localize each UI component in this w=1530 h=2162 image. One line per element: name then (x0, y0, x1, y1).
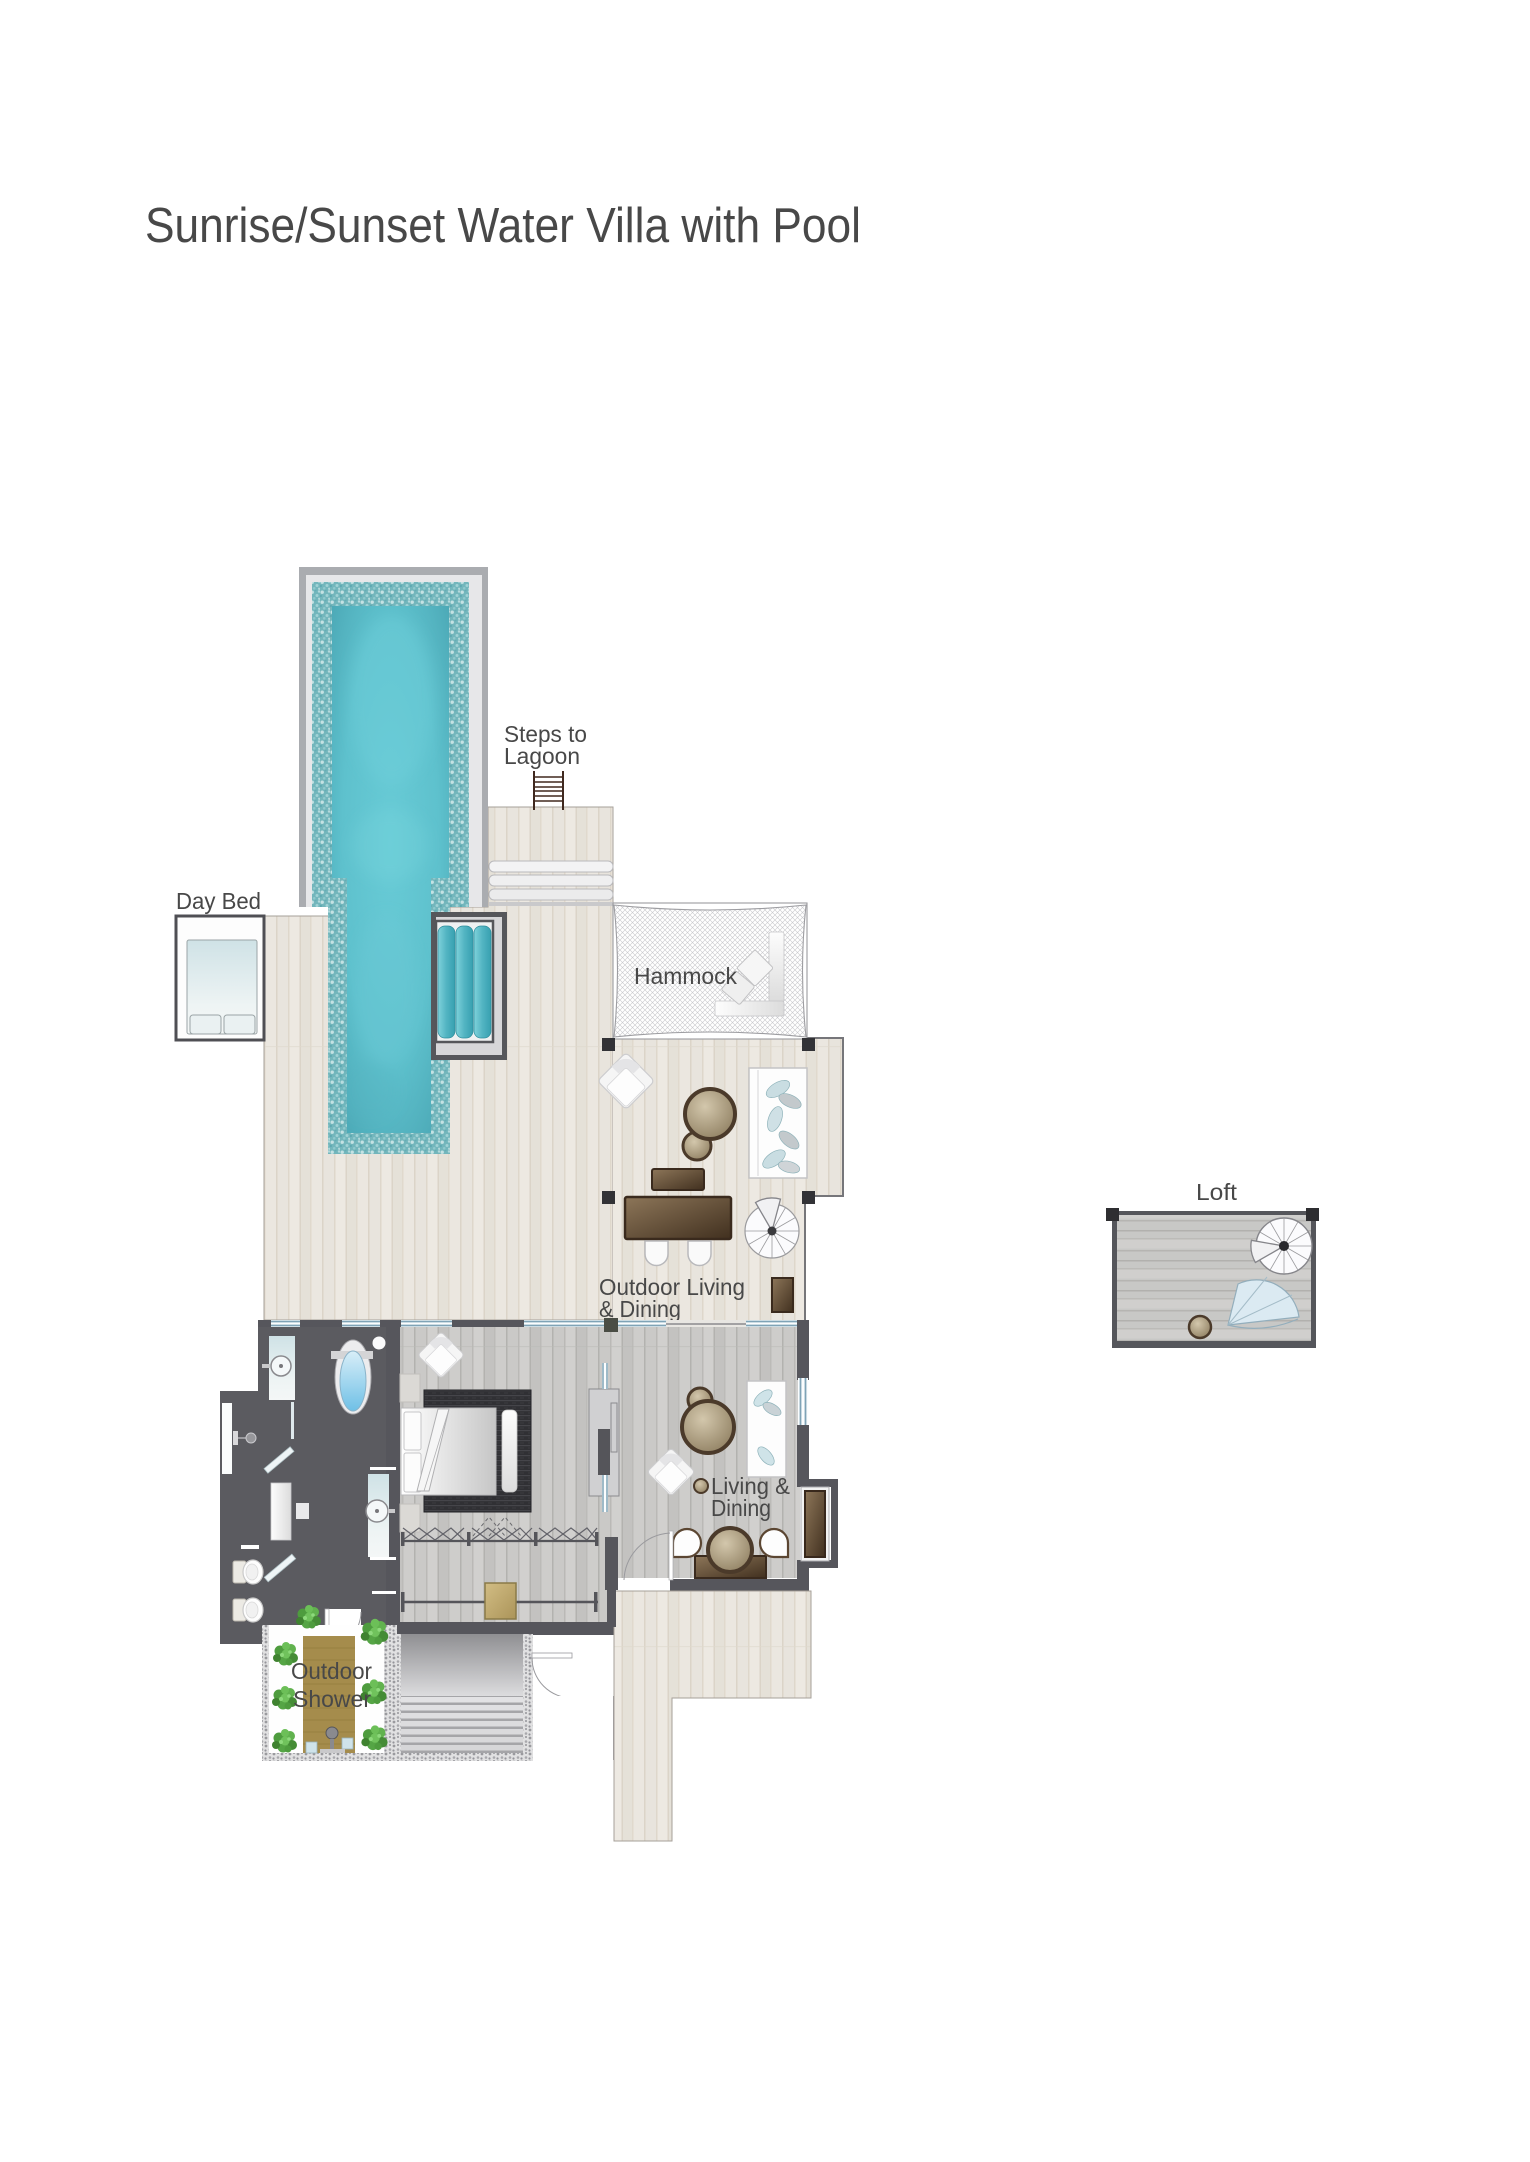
svg-text:Sunrise/Sunset Water Villa wit: Sunrise/Sunset Water Villa with Pool (145, 199, 861, 253)
svg-text:Hammock: Hammock (634, 963, 737, 989)
svg-text:Day Bed: Day Bed (176, 888, 261, 914)
svg-text:Loft: Loft (1196, 1179, 1238, 1205)
svg-text:Shower: Shower (293, 1686, 371, 1712)
svg-text:Outdoor: Outdoor (291, 1658, 372, 1684)
svg-text:Lagoon: Lagoon (504, 743, 580, 769)
svg-text:Dining: Dining (711, 1495, 771, 1521)
